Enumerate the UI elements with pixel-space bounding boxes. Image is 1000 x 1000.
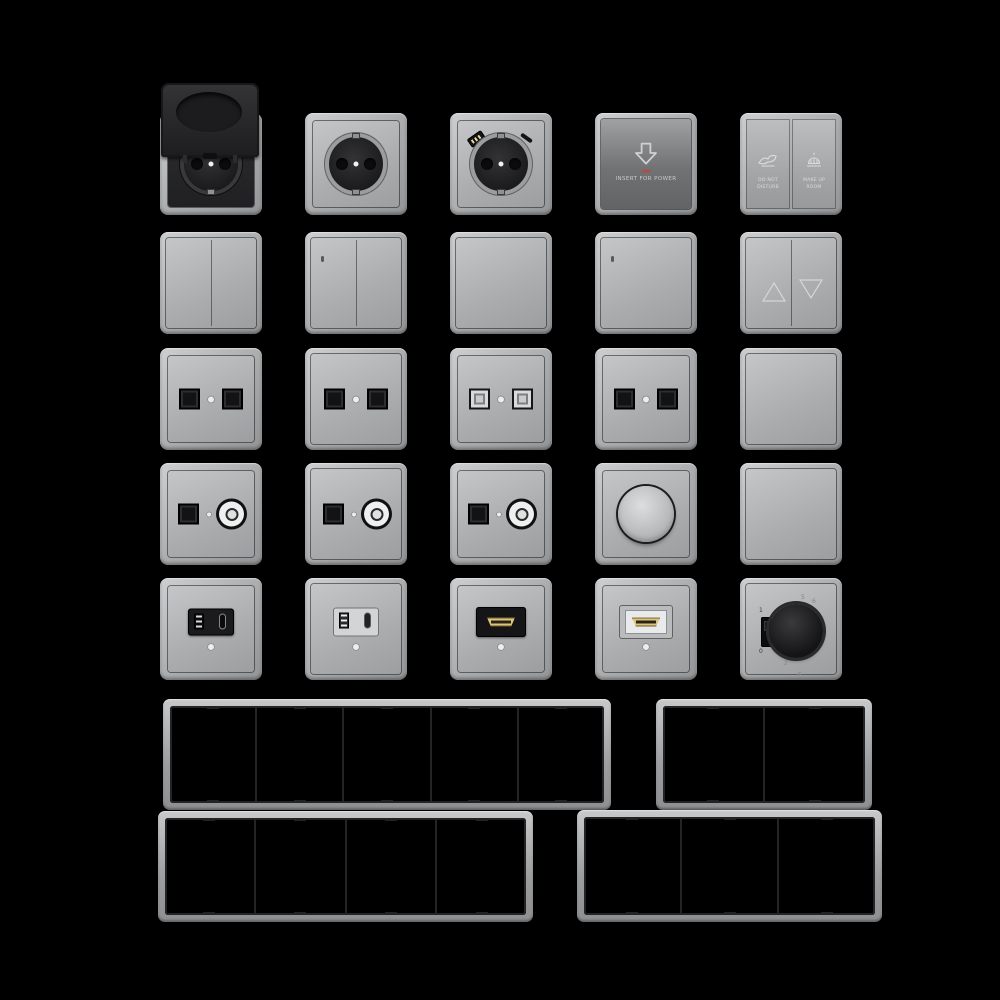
earth-clip-top <box>352 133 360 139</box>
do-not-disturb-label: DO NOT DISTURB <box>746 178 790 190</box>
tv-data-socket[interactable] <box>305 463 407 565</box>
socket-hole-left <box>481 158 493 170</box>
usb-c-port-icon[interactable] <box>520 133 533 144</box>
switch-2gang[interactable] <box>160 232 262 334</box>
socket-center-pin <box>209 162 214 167</box>
rocker-plate[interactable] <box>746 238 836 328</box>
socket-hole-right <box>364 158 376 170</box>
hdmi-port[interactable] <box>632 618 660 627</box>
switch-1gang[interactable] <box>450 232 552 334</box>
socket-plate <box>458 121 544 207</box>
earth-clip-top <box>497 133 505 139</box>
coax-connector[interactable] <box>364 502 389 527</box>
blank-cover <box>746 469 836 559</box>
row-media-thermostat: 1 0 5 6 4 3 2 ❄ <box>160 578 842 680</box>
data-socket-2port-light[interactable] <box>450 348 552 450</box>
socket-hole-left <box>191 158 203 170</box>
rocker-plate[interactable] <box>311 238 401 328</box>
frame-slot <box>257 706 344 803</box>
frame-openings <box>663 706 865 803</box>
make-up-room-button[interactable]: MAKE UP ROOM <box>792 119 836 209</box>
indicator-dot <box>352 395 360 403</box>
thermostat-plate: 1 0 5 6 4 3 2 ❄ <box>746 584 836 674</box>
indicator-dot <box>351 511 357 517</box>
switch-2gang-indicator[interactable] <box>305 232 407 334</box>
row-switches <box>160 232 842 334</box>
tv-plate <box>458 471 544 557</box>
frame-slot <box>256 818 347 915</box>
lid-hinge <box>203 153 217 159</box>
slider-on-mark: 1 <box>759 607 763 614</box>
dial-mark: 5 <box>801 594 805 601</box>
socket-hole-left <box>336 158 348 170</box>
socket-hole-right <box>509 158 521 170</box>
data-socket-2port[interactable] <box>160 348 262 450</box>
usb-plate <box>311 584 401 674</box>
data-plate <box>311 354 401 444</box>
frame-slot <box>682 817 780 915</box>
data-port-right[interactable] <box>657 389 678 410</box>
frame-3gang[interactable] <box>577 810 882 922</box>
data-port-left[interactable] <box>614 389 635 410</box>
rotary-dimmer[interactable] <box>595 463 697 565</box>
lid-catch <box>233 155 237 163</box>
earth-clip-bottom <box>207 189 215 195</box>
data-port-left[interactable] <box>469 389 490 410</box>
rocker-divider <box>356 240 357 326</box>
frame-slot <box>437 818 526 915</box>
socket-cover-lid[interactable] <box>161 83 259 157</box>
socket-center-pin <box>499 162 504 167</box>
slider-off-mark: 0 <box>759 648 763 655</box>
earth-clip-bottom <box>497 189 505 195</box>
data-plate <box>168 356 254 442</box>
dimmer-plate <box>603 471 689 557</box>
tv-plate <box>311 469 401 559</box>
indicator-dot <box>207 643 215 651</box>
usb-module <box>188 609 234 636</box>
schuko-recess <box>474 137 528 191</box>
socket-with-hinged-cover[interactable] <box>160 113 262 215</box>
indicator-dot <box>352 643 360 651</box>
coax-connector[interactable] <box>219 502 244 527</box>
dial-mark: 2 <box>784 660 788 667</box>
data-plate <box>458 356 544 442</box>
row-tv-dimmer <box>160 463 842 565</box>
indicator-dot <box>207 395 215 403</box>
do-not-disturb-button[interactable]: DO NOT DISTURB <box>746 119 790 209</box>
frame-openings <box>170 706 604 803</box>
indicator-led <box>611 256 614 262</box>
indicator-dot <box>642 643 650 651</box>
socket-hole-right <box>219 158 231 170</box>
tv-data-socket[interactable] <box>160 463 262 565</box>
schuko-socket-usb[interactable] <box>450 113 552 215</box>
usb-c-port[interactable] <box>365 613 370 627</box>
hdmi-module <box>619 605 673 639</box>
hdmi-port[interactable] <box>487 618 515 627</box>
key-card-switch[interactable]: INSERT FOR POWER <box>595 113 697 215</box>
data-port[interactable] <box>468 504 489 525</box>
hdmi-module <box>476 607 526 637</box>
socket-plate <box>313 121 399 207</box>
triangle-up-icon[interactable] <box>761 281 787 303</box>
data-port-left[interactable] <box>324 389 345 410</box>
lid-oval-recess <box>176 92 242 132</box>
card-switch-label: INSERT FOR POWER <box>601 176 691 182</box>
data-socket-2port[interactable] <box>595 348 697 450</box>
frame-slot <box>663 706 765 803</box>
data-socket-2port[interactable] <box>305 348 407 450</box>
indicator-dot <box>642 395 650 403</box>
do-not-disturb-icon <box>757 152 779 168</box>
rocker-plate[interactable] <box>601 238 691 328</box>
rocker-divider <box>791 240 792 326</box>
usb-charger-light[interactable] <box>305 578 407 680</box>
rocker-plate[interactable] <box>166 238 256 328</box>
data-port-right[interactable] <box>222 389 243 410</box>
indicator-dot <box>206 511 212 517</box>
data-port-right[interactable] <box>512 389 533 410</box>
tv-data-socket[interactable] <box>450 463 552 565</box>
thermostat[interactable]: 1 0 5 6 4 3 2 ❄ <box>740 578 842 680</box>
data-port-left[interactable] <box>179 389 200 410</box>
usb-a-port[interactable] <box>339 612 349 628</box>
socket-center-pin <box>354 162 359 167</box>
frame-2gang[interactable] <box>656 699 872 810</box>
indicator-dot <box>497 643 505 651</box>
indicator-dot <box>496 511 502 517</box>
frame-slot <box>344 706 431 803</box>
snowflake-symbol: ❄ <box>797 671 802 678</box>
card-switch-plate[interactable]: INSERT FOR POWER <box>601 119 691 209</box>
frame-slot <box>170 706 257 803</box>
blank-plate[interactable] <box>740 463 842 565</box>
usb-plate <box>168 586 254 672</box>
product-collection-canvas: INSERT FOR POWER DO NOT DISTURB <box>0 0 1000 1000</box>
frame-slot <box>584 817 682 915</box>
hdmi-socket-light[interactable] <box>595 578 697 680</box>
frame-slot <box>519 706 604 803</box>
make-up-room-label: MAKE UP ROOM <box>792 178 836 190</box>
frame-4gang[interactable] <box>158 811 533 922</box>
data-port[interactable] <box>323 504 344 525</box>
status-led <box>642 170 651 173</box>
data-port-right[interactable] <box>367 389 388 410</box>
dimmer-knob[interactable] <box>618 486 674 542</box>
frame-openings <box>584 817 875 915</box>
frame-slot <box>765 706 865 803</box>
earth-clip-bottom <box>352 189 360 195</box>
usb-a-port[interactable] <box>194 614 204 630</box>
data-port[interactable] <box>178 504 199 525</box>
hdmi-plate <box>458 586 544 672</box>
switch-1gang-indicator[interactable] <box>595 232 697 334</box>
hdmi-plate <box>603 586 689 672</box>
schuko-recess <box>329 137 383 191</box>
coax-connector[interactable] <box>509 502 534 527</box>
rocker-plate[interactable] <box>456 238 546 328</box>
thermostat-knob[interactable] <box>769 604 823 658</box>
dial-mark: 6 <box>812 598 816 605</box>
usb-module <box>333 607 379 636</box>
row-data-sockets <box>160 348 842 450</box>
schuko-socket[interactable] <box>305 113 407 215</box>
service-bell-icon <box>805 152 823 169</box>
indicator-led <box>321 256 324 262</box>
switch-1gang-flat[interactable] <box>740 348 842 450</box>
usb-charger-black[interactable] <box>160 578 262 680</box>
rocker-plate[interactable] <box>746 354 836 444</box>
triangle-down-icon[interactable] <box>798 278 824 300</box>
rocker-divider <box>211 240 212 326</box>
data-plate <box>603 356 689 442</box>
tv-plate <box>168 471 254 557</box>
indicator-dot <box>497 395 505 403</box>
hotel-service-switch[interactable]: DO NOT DISTURB MAKE UP ROOM <box>740 113 842 215</box>
usb-c-port[interactable] <box>220 615 225 629</box>
frame-slot <box>165 818 256 915</box>
frame-slot <box>432 706 519 803</box>
frame-slot <box>347 818 438 915</box>
frame-5gang[interactable] <box>163 699 611 810</box>
lid-catch <box>183 155 187 163</box>
row-sockets: INSERT FOR POWER DO NOT DISTURB <box>160 113 842 215</box>
frame-slot <box>779 817 875 915</box>
down-arrow-icon <box>631 138 661 168</box>
shutter-switch[interactable] <box>740 232 842 334</box>
hdmi-socket-black[interactable] <box>450 578 552 680</box>
frame-openings <box>165 818 526 915</box>
